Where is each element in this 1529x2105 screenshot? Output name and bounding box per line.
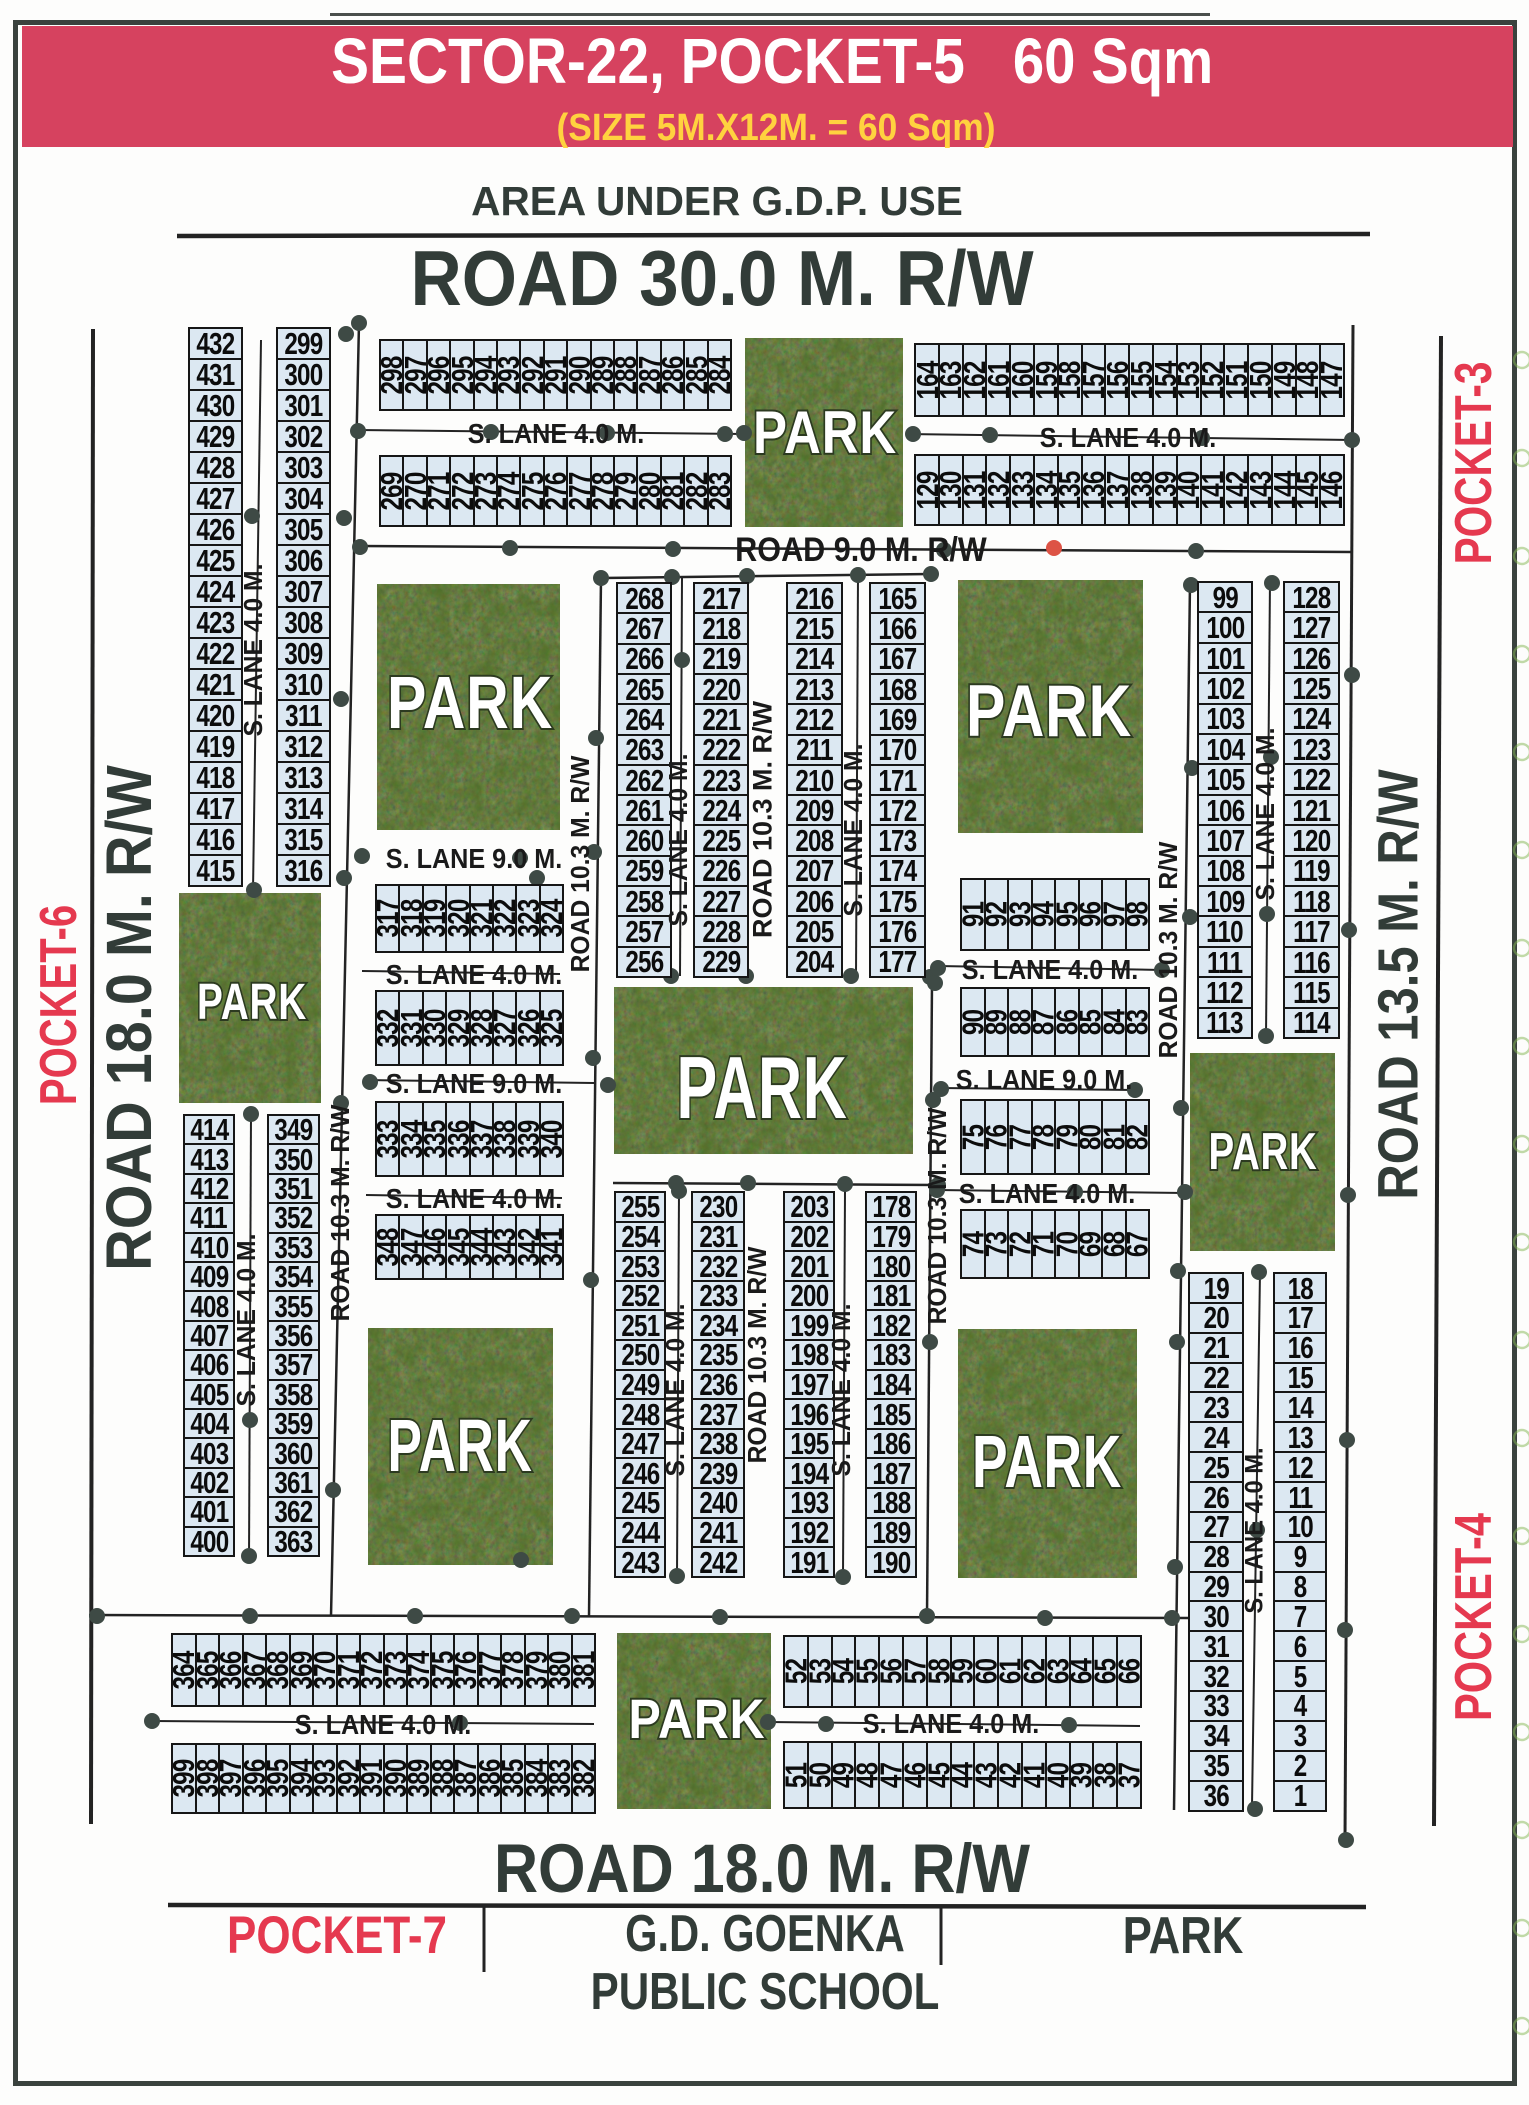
svg-text:PARK: PARK: [966, 671, 1132, 752]
svg-text:PARK: PARK: [387, 661, 553, 744]
svg-text:PARK: PARK: [388, 1404, 533, 1487]
svg-text:PARK: PARK: [972, 1420, 1122, 1503]
